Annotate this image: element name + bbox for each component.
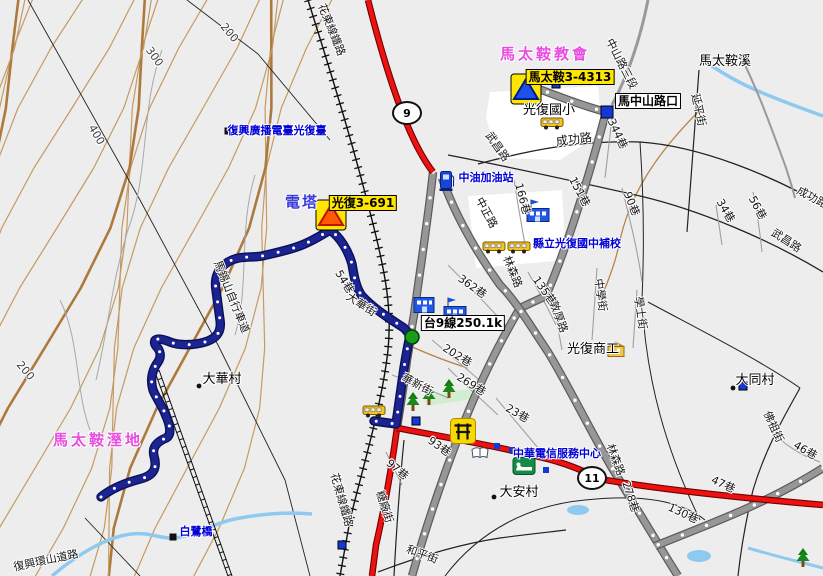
poi-square-icon[interactable] xyxy=(412,417,421,426)
label-daan-village: 大安村 xyxy=(499,486,538,500)
terrain-lines xyxy=(28,0,823,576)
label-guangfu-vocational: 光復商工 xyxy=(567,343,619,357)
gps-route-track xyxy=(101,230,410,497)
label-cpc-gas-station: 中油加油站 xyxy=(459,172,514,184)
label-fuxing-radio-station: 復興廣播電臺光復臺 xyxy=(228,125,327,137)
library-book-icon[interactable] xyxy=(470,446,490,461)
park-tree-icon[interactable] xyxy=(405,391,421,413)
gas-station-icon[interactable] xyxy=(439,170,456,193)
poi-square-small-icon[interactable] xyxy=(543,467,549,473)
bridge-marker-icon[interactable] xyxy=(169,533,177,541)
poi-square-small-icon[interactable] xyxy=(494,443,500,449)
box-ma-zhongshan-intersection: 馬中山路口 xyxy=(615,93,681,109)
poi-square-icon[interactable] xyxy=(338,541,347,550)
route-start-icon[interactable] xyxy=(404,329,421,346)
village-dot-icon[interactable] xyxy=(491,494,497,500)
map-canvas[interactable]: 911 馬太鞍教會馬太鞍溼地電塔馬太鞍3-4313光復3-691馬中山路口台9線… xyxy=(0,0,823,576)
school-bus-icon[interactable] xyxy=(362,404,386,418)
school-bus-icon[interactable] xyxy=(507,240,531,254)
label-matai-church: 馬太鞍教會 xyxy=(500,46,590,63)
highway-9-shield: 9 xyxy=(392,101,422,125)
temple-icon[interactable] xyxy=(450,418,477,445)
box-highway9-milestone: 台9線250.1k xyxy=(421,315,505,331)
label-bailu-bridge: 白鷺橋 xyxy=(180,526,213,538)
label-guangfu-elementary: 光復國小 xyxy=(523,104,575,118)
school-bus-icon[interactable] xyxy=(482,240,506,254)
label-chunghwa-telecom-center: 中華電信服務中心 xyxy=(513,448,601,460)
label-dahua-village: 大華村 xyxy=(202,373,241,387)
label-matai-wetland: 馬太鞍溼地 xyxy=(53,432,143,449)
label-power-tower: 電塔 xyxy=(285,194,319,211)
badge-matai-3-4313: 馬太鞍3-4313 xyxy=(526,69,615,85)
building-icon[interactable] xyxy=(413,297,435,314)
label-guangfu-junior-high-supplementary: 縣立光復國中補校 xyxy=(533,238,621,250)
highway-11-shield: 11 xyxy=(577,466,607,490)
intersection-square-icon[interactable] xyxy=(601,106,614,119)
label-datong-village: 大同村 xyxy=(735,374,774,388)
label-matai-creek: 馬太鞍溪 xyxy=(699,55,751,69)
badge-guangfu-3-691: 光復3-691 xyxy=(329,195,397,211)
map-base-layer xyxy=(0,0,823,576)
park-tree-icon[interactable] xyxy=(795,547,811,569)
village-dot-icon[interactable] xyxy=(196,383,202,389)
